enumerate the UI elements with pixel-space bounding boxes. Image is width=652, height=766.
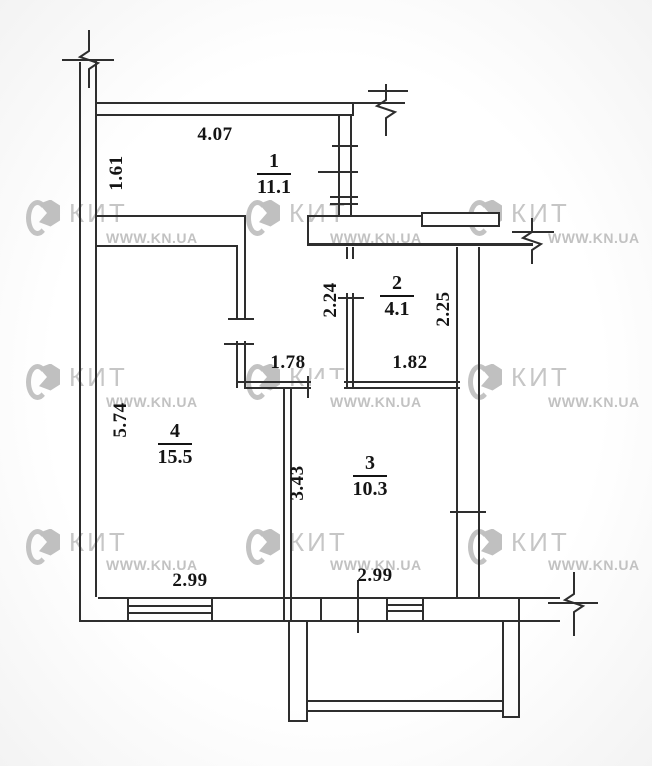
watermark-brand: КИТ: [69, 527, 128, 558]
room-area: 11.1: [246, 176, 302, 198]
balcony-wall-right-cap: [502, 716, 520, 718]
watermark-brand: КИТ: [511, 362, 570, 393]
wall-hall-right-a: [338, 116, 340, 215]
wall-corridor-left-b: [244, 215, 246, 388]
floor-plan-canvas: КИТ КИТ КИТ КИТ КИТ КИТ КИТ КИТ КИТ WWW.…: [0, 0, 652, 766]
watermark-kit: КИТ: [468, 527, 570, 558]
dimension-kitchen-height: 3.43: [287, 453, 309, 513]
watermark-url: WWW.KN.UA: [330, 394, 422, 410]
dimension-hall-lower-height: 2.24: [320, 270, 342, 330]
room-number: 2: [369, 272, 425, 294]
room-number: 1: [246, 150, 302, 172]
window-living: [127, 605, 213, 607]
balcony-railing: [306, 710, 504, 712]
wall-living-kitchen-a: [283, 388, 285, 620]
watermark-brand: КИТ: [511, 527, 570, 558]
watermark-kit: КИТ: [26, 527, 128, 558]
wall-entry-bottom: [307, 243, 533, 246]
wall-entry-top: [307, 215, 422, 217]
wall-exterior-right-inner: [456, 247, 458, 597]
balcony-door-jamb: [320, 597, 322, 620]
window-jamb: [211, 597, 213, 620]
watermark-url: WWW.KN.UA: [548, 557, 640, 573]
wall-exterior-top-inner: [95, 114, 354, 116]
window-divider-tick: [332, 145, 358, 147]
wall-break-icon: [76, 30, 104, 88]
dimension-hall-lower-width: 1.78: [260, 352, 316, 374]
wall-hall-living-bottom: [95, 245, 238, 247]
wall-exterior-bottom-outer: [79, 620, 560, 622]
window-divider-tick: [330, 196, 358, 198]
wall-break-icon: [520, 218, 546, 264]
window-divider-tick: [318, 171, 358, 173]
room-label-hall: 1 11.1: [246, 150, 302, 198]
dimension-bath-width: 1.82: [382, 352, 438, 374]
wall-top-end-post: [352, 102, 354, 116]
wall-hall-right-b: [350, 116, 352, 215]
room-label-divider: [380, 295, 414, 297]
door-jamb-tick: [228, 318, 254, 320]
balcony-wall-right-a: [502, 620, 504, 718]
balcony-wall-left-a: [288, 620, 290, 722]
kit-logo-icon: [468, 528, 502, 558]
wall-hall-living-top: [95, 215, 246, 217]
wall-exterior-bottom-inner: [98, 597, 560, 599]
wall-exterior-left-outer: [79, 62, 81, 622]
wall-break-icon: [374, 84, 400, 136]
wall-entry-left-edge: [307, 215, 309, 245]
balcony-wall-left-cap: [288, 720, 308, 722]
kit-logo-icon: [246, 199, 280, 229]
window-kitchen: [386, 604, 424, 606]
wall-tick: [450, 511, 486, 513]
watermark-url: WWW.KN.UA: [106, 230, 198, 246]
wall-corridor-kitchen-a: [236, 381, 460, 383]
dimension-kitchen-width: 2.99: [347, 565, 403, 587]
wall-exterior-left-inner: [95, 60, 97, 597]
kit-logo-icon: [468, 363, 502, 393]
door-jamb-tick: [224, 343, 254, 345]
room-area: 4.1: [369, 298, 425, 320]
dimension-hall-top-height: 1.61: [106, 143, 128, 203]
dimension-living-width: 2.99: [162, 570, 218, 592]
dimension-hall-top-width: 4.07: [185, 124, 245, 146]
kit-logo-icon: [26, 199, 60, 229]
room-number: 3: [342, 452, 398, 474]
watermark-kit: КИТ: [468, 362, 570, 393]
door-opening-kitchen: [311, 379, 344, 391]
dimension-divider-line: [357, 580, 359, 633]
kit-logo-icon: [26, 528, 60, 558]
room-label-divider: [158, 443, 192, 445]
wall-corridor-left-a: [236, 246, 238, 388]
room-area: 10.3: [342, 478, 398, 500]
wall-exterior-right-outer: [478, 247, 480, 597]
window-jamb: [386, 597, 388, 620]
dimension-bath-height: 2.25: [433, 279, 455, 339]
room-label-living: 4 15.5: [147, 420, 203, 468]
entry-door-leaf: [421, 212, 500, 227]
wall-exterior-top-outer: [95, 102, 405, 104]
kit-logo-icon: [26, 363, 60, 393]
door-opening-living: [234, 320, 248, 341]
balcony-wall-left-b: [306, 620, 308, 722]
window-jamb: [422, 597, 424, 620]
watermark-url: WWW.KN.UA: [548, 394, 640, 410]
room-number: 4: [147, 420, 203, 442]
window-living: [127, 612, 213, 614]
balcony-railing: [306, 700, 504, 702]
dimension-living-height: 5.74: [110, 390, 132, 450]
room-label-bath: 2 4.1: [369, 272, 425, 320]
door-jamb-tick: [307, 376, 309, 398]
kit-logo-icon: [246, 528, 280, 558]
watermark-kit: КИТ: [246, 527, 348, 558]
room-label-divider: [353, 475, 387, 477]
watermark-url: WWW.KN.UA: [548, 230, 640, 246]
watermark-brand: КИТ: [69, 362, 128, 393]
window-jamb: [127, 597, 129, 620]
room-label-kitchen: 3 10.3: [342, 452, 398, 500]
balcony-wall-right-b: [518, 597, 520, 718]
wall-corridor-kitchen-b: [244, 387, 460, 389]
door-opening-bath: [344, 259, 356, 293]
room-label-divider: [257, 173, 291, 175]
window-divider-tick: [330, 203, 358, 205]
room-area: 15.5: [147, 446, 203, 468]
watermark-kit: КИТ: [26, 362, 128, 393]
watermark-brand: КИТ: [289, 527, 348, 558]
wall-break-icon: [562, 572, 588, 636]
window-kitchen: [386, 610, 424, 612]
